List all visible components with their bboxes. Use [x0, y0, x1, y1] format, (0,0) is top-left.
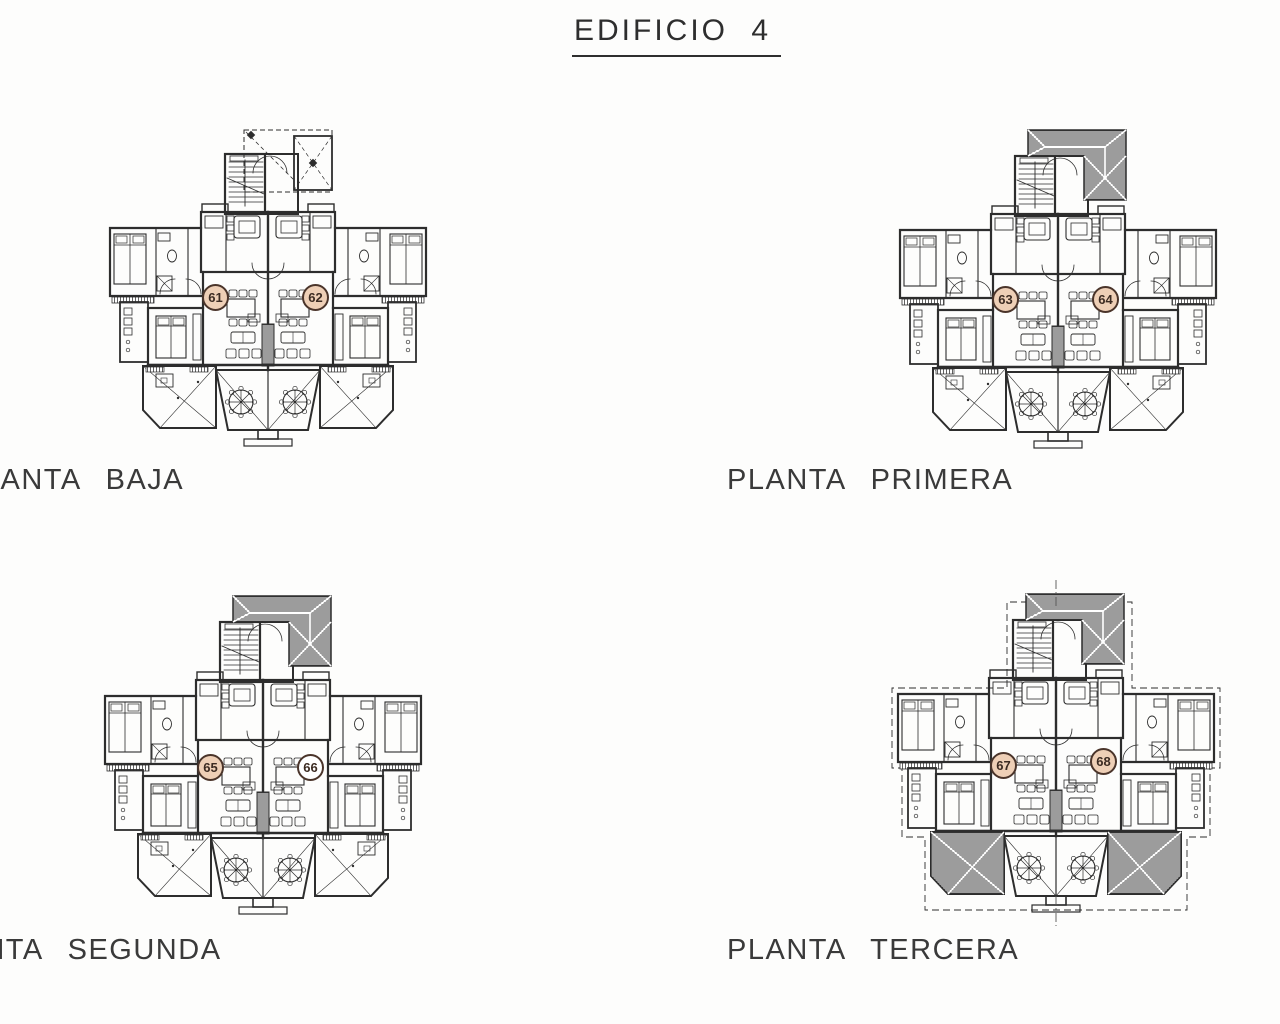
floor-plan-drawing	[886, 584, 1228, 922]
unit-badge: 68	[1090, 748, 1117, 775]
hatched-hip-roof	[1028, 130, 1126, 200]
apartment-linework	[105, 622, 421, 914]
floor-plan-drawing	[888, 120, 1230, 458]
floor-plan-planta-segunda: 65 66	[93, 586, 435, 924]
unit-badge: 65	[197, 754, 224, 781]
plan-label-planta-primera: PLANTA PRIMERA	[727, 464, 1013, 497]
unit-number: 64	[1098, 292, 1112, 307]
floor-plan-planta-tercera: 67 68	[886, 584, 1228, 922]
unit-number: 65	[203, 760, 217, 775]
apartment-linework	[900, 156, 1216, 448]
hatched-hip-roof	[233, 596, 331, 666]
plan-label-planta-segunda: PLANTA SEGUNDA	[0, 934, 222, 967]
unit-badge: 61	[202, 284, 229, 311]
hatched-hip-roof	[1026, 594, 1124, 664]
unit-number: 63	[998, 292, 1012, 307]
unit-number: 66	[303, 760, 317, 775]
floor-plan-drawing	[93, 586, 435, 924]
apartment-linework	[110, 154, 426, 446]
floor-plan-planta-primera: 63 64	[888, 120, 1230, 458]
unit-number: 61	[208, 290, 222, 305]
unit-badge: 67	[990, 752, 1017, 779]
unit-badge: 64	[1092, 286, 1119, 313]
unit-badge: 66	[297, 754, 324, 781]
unit-number: 62	[308, 290, 322, 305]
plan-label-planta-baja: PLANTA BAJA	[0, 464, 184, 497]
unit-number: 67	[996, 758, 1010, 773]
plan-label-planta-tercera: PLANTA TERCERA	[727, 934, 1019, 967]
unit-badge: 62	[302, 284, 329, 311]
unit-number: 68	[1096, 754, 1110, 769]
floor-plan-drawing	[98, 118, 440, 456]
unit-badge: 63	[992, 286, 1019, 313]
sheet-title: EDIFICIO 4	[572, 14, 781, 57]
floor-plan-planta-baja: 61 62	[98, 118, 440, 456]
